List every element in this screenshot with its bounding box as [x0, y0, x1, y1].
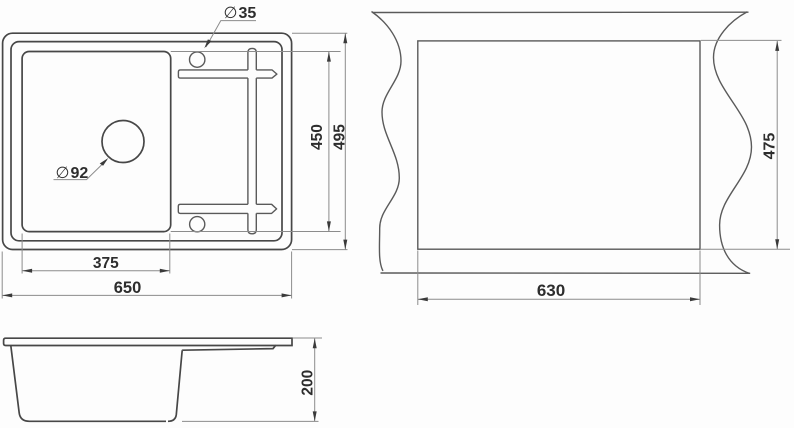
svg-text:495: 495 — [332, 124, 349, 150]
svg-text:630: 630 — [537, 281, 565, 300]
svg-text:650: 650 — [114, 279, 142, 297]
svg-text:475: 475 — [762, 133, 779, 160]
svg-text:450: 450 — [309, 124, 326, 150]
svg-text:200: 200 — [299, 370, 316, 396]
svg-text:375: 375 — [93, 255, 119, 272]
svg-text:∅35: ∅35 — [224, 5, 257, 22]
